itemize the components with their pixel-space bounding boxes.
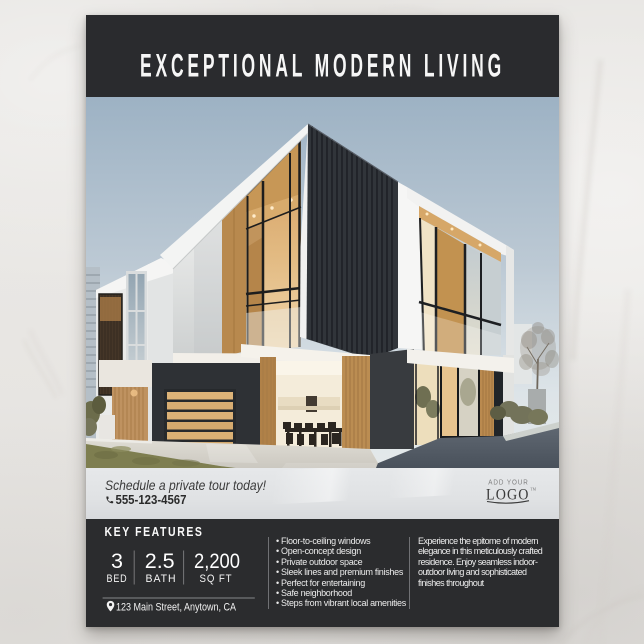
svg-text:BATH: BATH (146, 573, 177, 585)
svg-text:555-123-4567: 555-123-4567 (116, 492, 187, 507)
svg-text:SQ FT: SQ FT (200, 573, 233, 585)
svg-text:EXCEPTIONAL MODERN LIVING: EXCEPTIONAL MODERN LIVING (140, 48, 505, 84)
svg-text:2.5: 2.5 (145, 549, 175, 573)
svg-text:KEY FEATURES: KEY FEATURES (105, 524, 204, 539)
svg-text:LOGO: LOGO (486, 486, 530, 503)
svg-text:3: 3 (111, 549, 123, 573)
svg-text:TM: TM (531, 488, 537, 492)
svg-text:BED: BED (107, 573, 128, 585)
svg-text:Schedule a private tour today!: Schedule a private tour today! (105, 477, 266, 493)
svg-text:2,200: 2,200 (194, 549, 240, 573)
svg-text:123 Main Street, Anytown, CA: 123 Main Street, Anytown, CA (116, 602, 237, 614)
svg-text:ADD YOUR: ADD YOUR (488, 477, 529, 486)
